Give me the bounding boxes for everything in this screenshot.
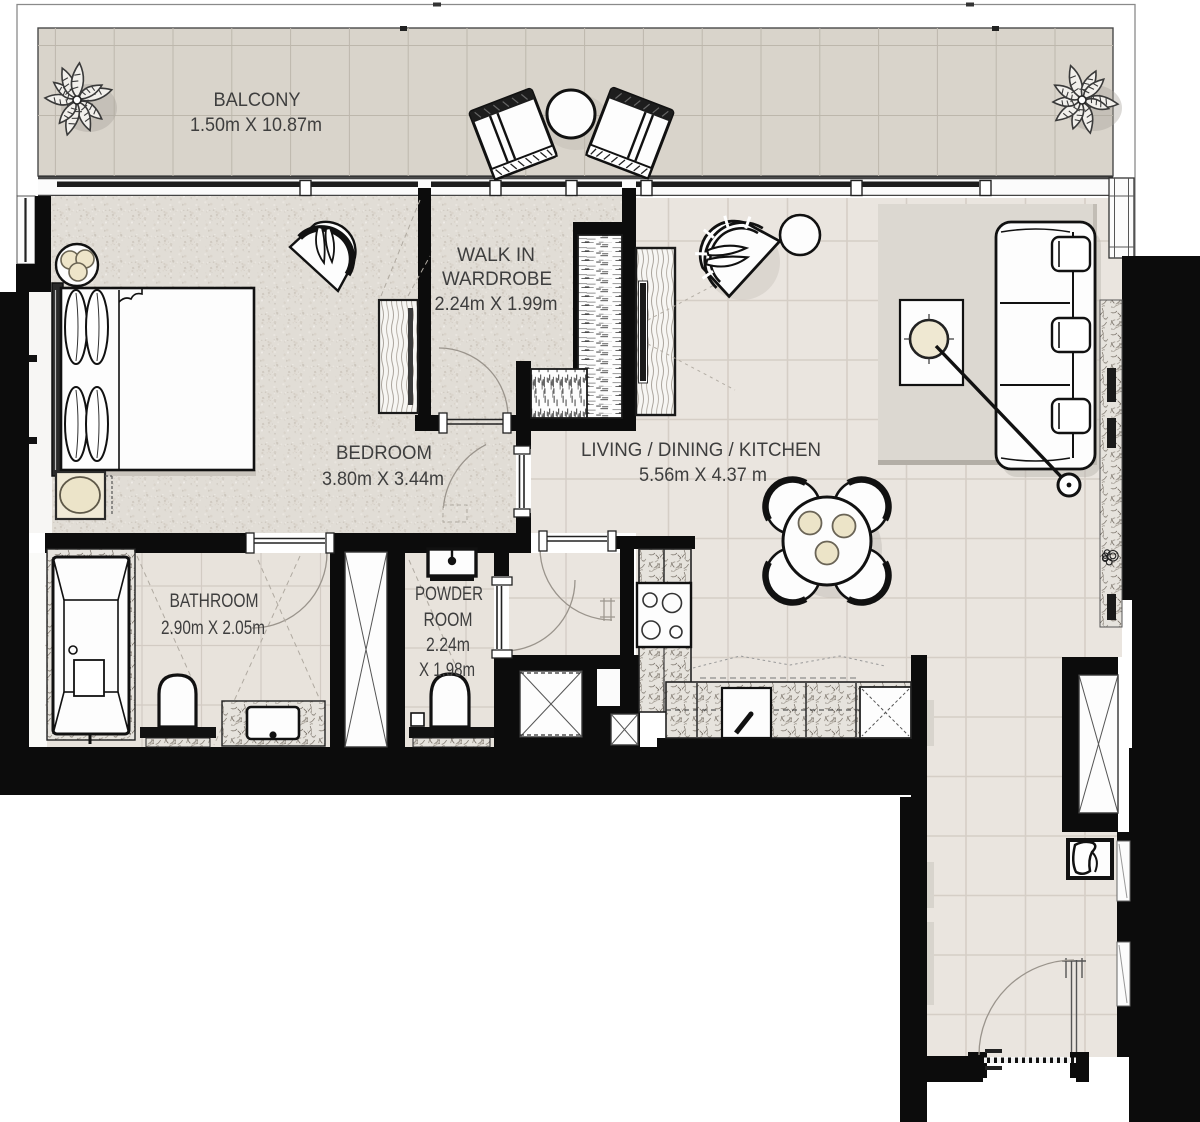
svg-text:2.24m: 2.24m: [426, 635, 470, 656]
svg-text:BEDROOM: BEDROOM: [336, 443, 432, 464]
svg-text:3.80m X 3.44m: 3.80m X 3.44m: [322, 469, 444, 490]
svg-text:2.90m X 2.05m: 2.90m X 2.05m: [161, 618, 265, 639]
svg-text:WALK IN: WALK IN: [457, 245, 535, 266]
svg-text:POWDER: POWDER: [415, 584, 483, 605]
svg-text:5.56m X 4.37 m: 5.56m X 4.37 m: [639, 465, 767, 486]
svg-text:BATHROOM: BATHROOM: [170, 591, 259, 612]
svg-text:X 1.98m: X 1.98m: [419, 660, 475, 681]
svg-text:WARDROBE: WARDROBE: [442, 269, 552, 290]
svg-text:LIVING / DINING / KITCHEN: LIVING / DINING / KITCHEN: [581, 440, 821, 461]
svg-text:BALCONY: BALCONY: [214, 90, 301, 111]
svg-text:2.24m X 1.99m: 2.24m X 1.99m: [435, 294, 558, 315]
svg-text:1.50m X 10.87m: 1.50m X 10.87m: [190, 115, 322, 136]
svg-text:ROOM: ROOM: [424, 610, 473, 631]
